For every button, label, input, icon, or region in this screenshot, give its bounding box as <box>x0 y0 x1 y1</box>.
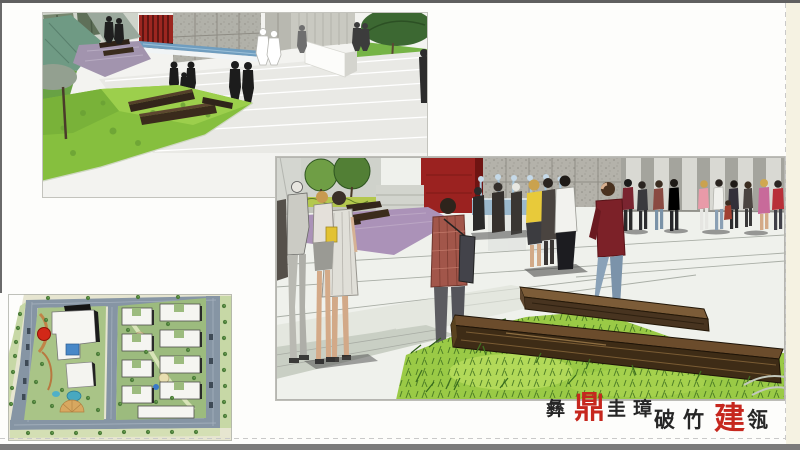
logo-char-pre2: 破竹 <box>654 406 712 434</box>
logo-char-post2: 瓴 <box>747 406 776 434</box>
logo-char-post1: 圭璋 <box>607 397 659 423</box>
site-plan-image <box>8 294 232 441</box>
studio-logo-line2: 破竹 建 瓴 <box>654 403 776 434</box>
render-image-plaza-sketch <box>276 157 785 400</box>
logo-char-pre1: 彝 <box>546 397 572 423</box>
residential-parcel <box>116 298 206 420</box>
dashed-guide-horizontal <box>0 438 786 439</box>
site-plan-graphic <box>8 294 232 441</box>
plaza-sketch-graphic <box>276 157 785 400</box>
presentation-slide: 彝 鼎 圭璋 破竹 建 瓴 <box>0 0 800 450</box>
window-bottom-edge <box>0 444 800 450</box>
logo-seal-accent-char: 鼎 <box>574 392 605 423</box>
window-left-edge <box>0 3 2 293</box>
dashed-guide-vertical <box>785 3 786 444</box>
studio-logo-line1: 彝 鼎 圭璋 <box>546 392 659 423</box>
window-top-edge <box>0 0 800 3</box>
logo-accent-char: 建 <box>714 403 745 434</box>
slide-right-margin-strip <box>786 3 800 444</box>
